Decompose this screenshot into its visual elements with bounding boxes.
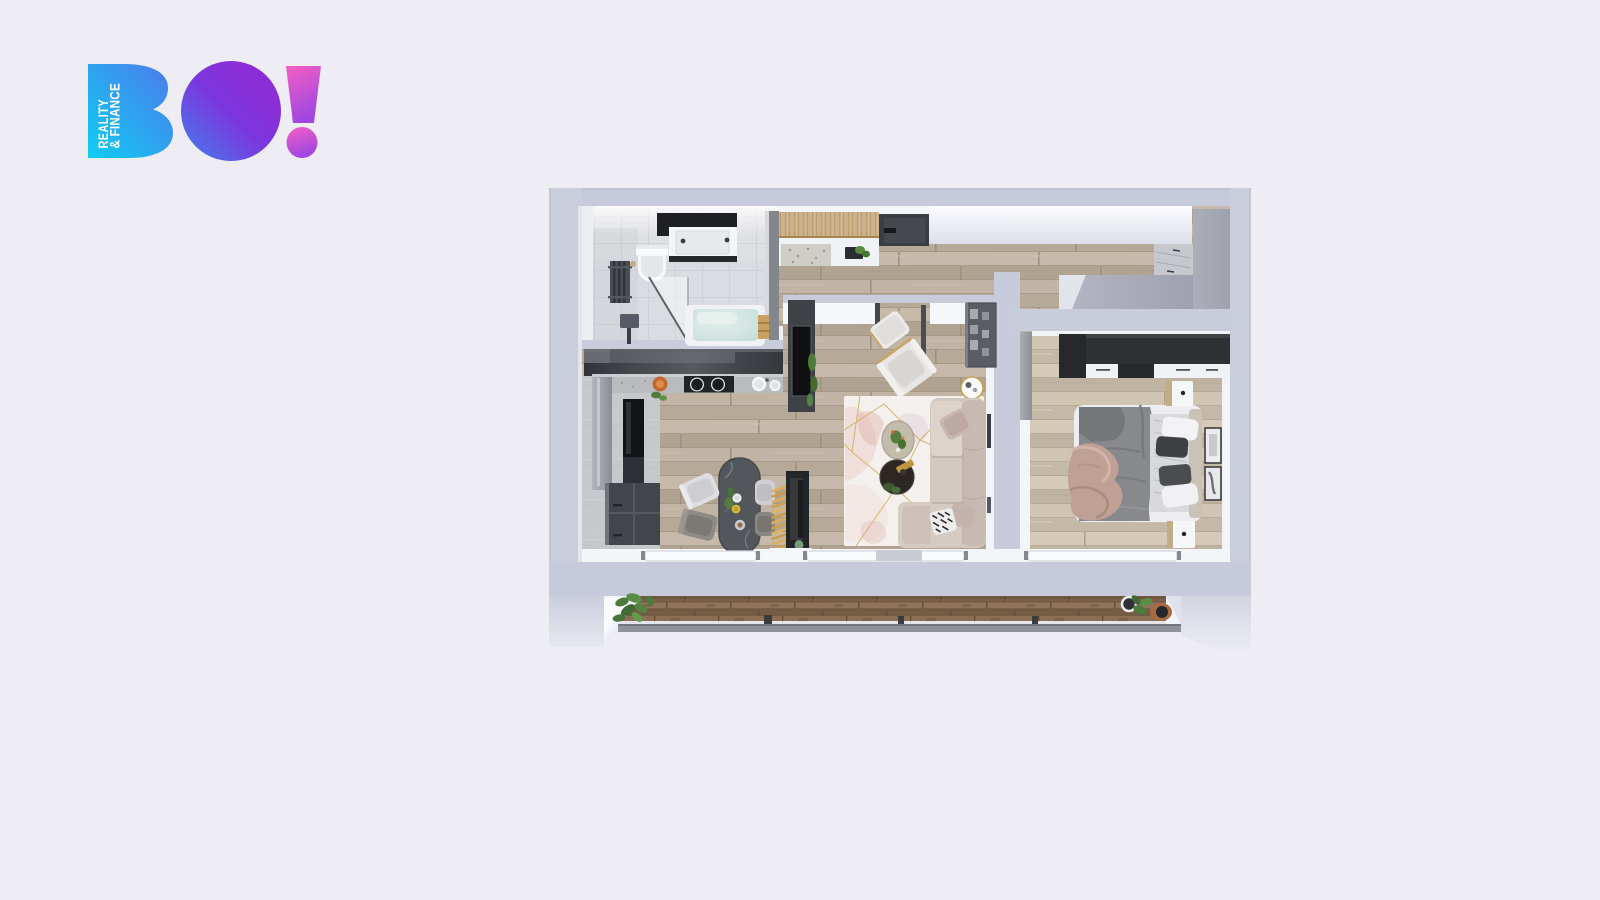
svg-text:& FINANCE: & FINANCE [108, 83, 123, 148]
